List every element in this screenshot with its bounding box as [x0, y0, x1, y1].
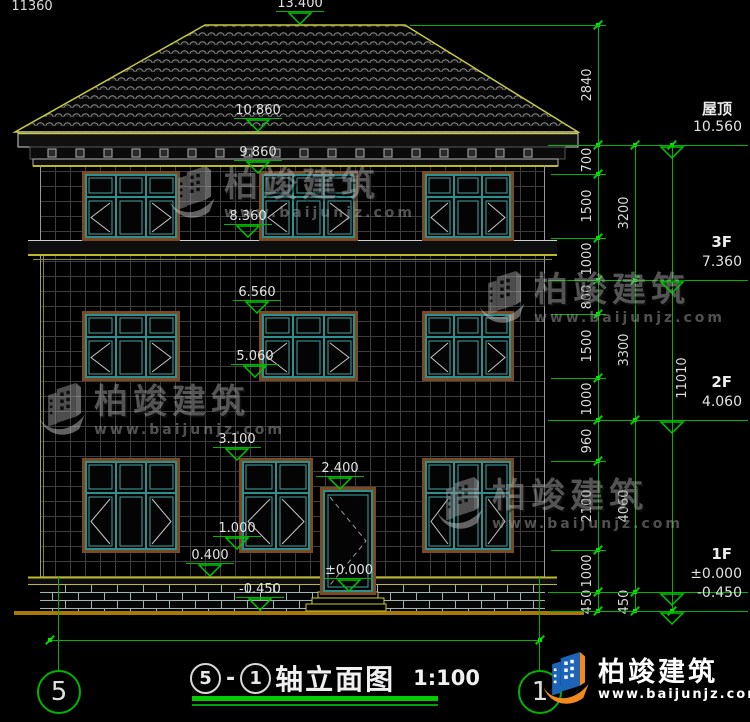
level-name: 2F	[662, 373, 732, 391]
elevation-marker: 8.360	[216, 210, 280, 238]
dimension-line	[551, 238, 606, 239]
elevation-value: 6.560	[238, 286, 275, 300]
elevation-marker: 10.860	[226, 104, 290, 132]
elevation-drawing: 13.40010.8609.8608.3606.5605.0603.1002.4…	[0, 0, 750, 722]
elevation-marker: 5.060	[223, 350, 287, 378]
level-value: 4.060	[672, 394, 742, 410]
company-logo: 柏竣建筑 www.baijunjz.com	[540, 649, 750, 711]
elevation-value: -0.450	[239, 583, 281, 597]
elevation-marker: ±0.000	[317, 564, 381, 592]
elevation-value: ±0.000	[325, 564, 373, 578]
dimension-line	[551, 174, 606, 175]
elevation-value: 13.400	[277, 0, 323, 11]
dimension-line	[410, 25, 606, 26]
dimension-line	[551, 461, 606, 462]
level-value: ±0.000	[672, 566, 742, 582]
elevation-marker: 1.000	[205, 522, 269, 550]
level-name: 1F	[662, 545, 732, 563]
window	[422, 171, 514, 241]
dimension-line	[598, 25, 599, 611]
level-value: 10.560	[672, 119, 742, 135]
window	[422, 311, 514, 381]
dimension-line	[635, 145, 636, 611]
elevation-value: 0.400	[191, 549, 228, 563]
title-scale: 1:100	[413, 666, 480, 690]
level-triangle-icon	[660, 612, 684, 625]
axis-bubble-5: 5	[37, 670, 81, 714]
dimension-line	[551, 314, 606, 315]
title-axis-end: 1	[240, 663, 271, 694]
title-underline-thick	[192, 696, 438, 701]
window	[422, 458, 514, 553]
level-triangle-icon	[660, 421, 684, 434]
level-name: 屋顶	[662, 98, 732, 119]
window	[82, 458, 180, 553]
level-triangle-icon	[660, 281, 684, 294]
logo-url: www.baijunjz.com	[598, 687, 750, 702]
baijun-logo-icon	[540, 649, 592, 711]
title-text: 轴立面图	[275, 658, 395, 698]
level-value: -0.450	[672, 585, 742, 601]
brick-plinth	[40, 585, 545, 611]
elevation-value: 9.860	[239, 146, 276, 160]
title-axis-start: 5	[190, 663, 221, 694]
elevation-value: 10.860	[235, 104, 281, 118]
level-name: 3F	[662, 233, 732, 251]
elevation-marker: 0.400	[178, 549, 242, 577]
elevation-value: 2.400	[321, 462, 358, 476]
dimension-line	[551, 378, 606, 379]
window	[82, 311, 180, 381]
elevation-value: 8.360	[229, 210, 266, 224]
elevation-marker: 13.400	[268, 0, 332, 25]
ground-line	[14, 611, 584, 615]
dimension-line	[58, 577, 59, 672]
roof-hip	[15, 25, 578, 132]
elevation-marker: 2.400	[308, 462, 372, 490]
dimension-line	[551, 550, 606, 551]
elevation-marker: 9.860	[226, 146, 290, 174]
elevation-value: 1.000	[218, 522, 255, 536]
elevation-marker: 6.560	[225, 286, 289, 314]
window	[82, 171, 180, 241]
elevation-value: 5.060	[236, 350, 273, 364]
level-value: 7.360	[672, 254, 742, 270]
title-dash: -	[226, 666, 235, 691]
drawing-title: 5 - 1 轴立面图 1:100	[190, 658, 480, 698]
logo-name: 柏竣建筑	[598, 659, 750, 687]
elevation-marker: -0.450	[228, 583, 292, 611]
dimension-node	[48, 638, 52, 642]
level-triangle-icon	[660, 146, 684, 159]
dimension-line	[50, 640, 540, 641]
elevation-marker: 3.100	[205, 433, 269, 461]
elevation-value: 3.100	[218, 433, 255, 447]
title-underline-thin	[192, 704, 438, 706]
